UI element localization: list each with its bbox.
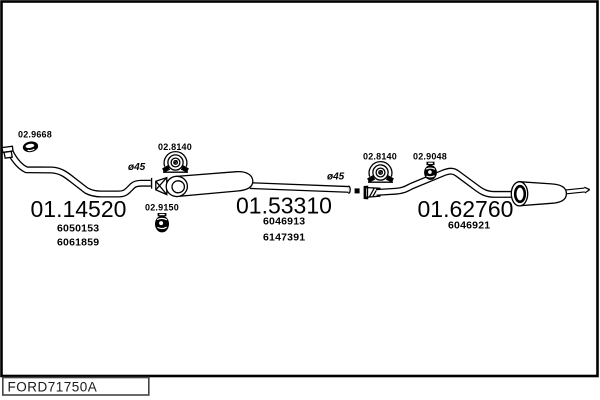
clamp-front-part-label: 02.8140 bbox=[158, 142, 192, 152]
clamp-icon bbox=[367, 162, 394, 183]
clamp-rear-part-label: 02.8140 bbox=[363, 152, 397, 162]
rear-silencer-oe-ref: 6046921 bbox=[448, 220, 490, 232]
code-box: FORD71750A bbox=[3, 378, 149, 396]
hanger-rear-part-label: 02.9048 bbox=[413, 152, 447, 162]
joint-square bbox=[355, 188, 360, 193]
exhaust-parts-diagram: 02.9668 02.8140 ø45 02.9150 ø45 02.8140 … bbox=[0, 0, 600, 400]
flange-icon bbox=[2, 146, 13, 158]
middle-silencer-oe-ref: 6046913 bbox=[263, 216, 305, 228]
diameter-rear-label: ø45 bbox=[327, 172, 345, 183]
diameter-front-label: ø45 bbox=[128, 162, 146, 173]
vehicle-code: FORD71750A bbox=[8, 380, 98, 395]
front-pipe-oe-ref: 6050153 bbox=[57, 223, 99, 235]
rear-silencer-drawing bbox=[511, 182, 566, 206]
diagram-canvas: 02.9668 02.8140 ø45 02.9150 ø45 02.8140 … bbox=[0, 0, 600, 400]
strap-hanger-icon bbox=[424, 162, 437, 180]
rear-pipe-drawing bbox=[377, 171, 513, 194]
tailpipe-drawing bbox=[565, 187, 590, 193]
inlet-flare bbox=[156, 178, 167, 195]
rear-silencer-part-number: 01.62760 bbox=[418, 196, 514, 222]
hanger-middle-part-label: 02.9150 bbox=[145, 203, 179, 213]
tailpipe-tip bbox=[584, 187, 589, 193]
middle-silencer-oe-ref: 6147391 bbox=[263, 232, 305, 244]
front-pipe-oe-ref: 6061859 bbox=[57, 237, 99, 249]
rubber-hanger-icon bbox=[155, 213, 169, 232]
clamp-icon bbox=[162, 152, 189, 173]
gasket-part-label: 02.9668 bbox=[18, 130, 52, 140]
front-pipe-part-number: 01.14520 bbox=[31, 196, 127, 222]
gasket-icon bbox=[22, 140, 39, 153]
front-pipe-drawing bbox=[11, 153, 152, 195]
